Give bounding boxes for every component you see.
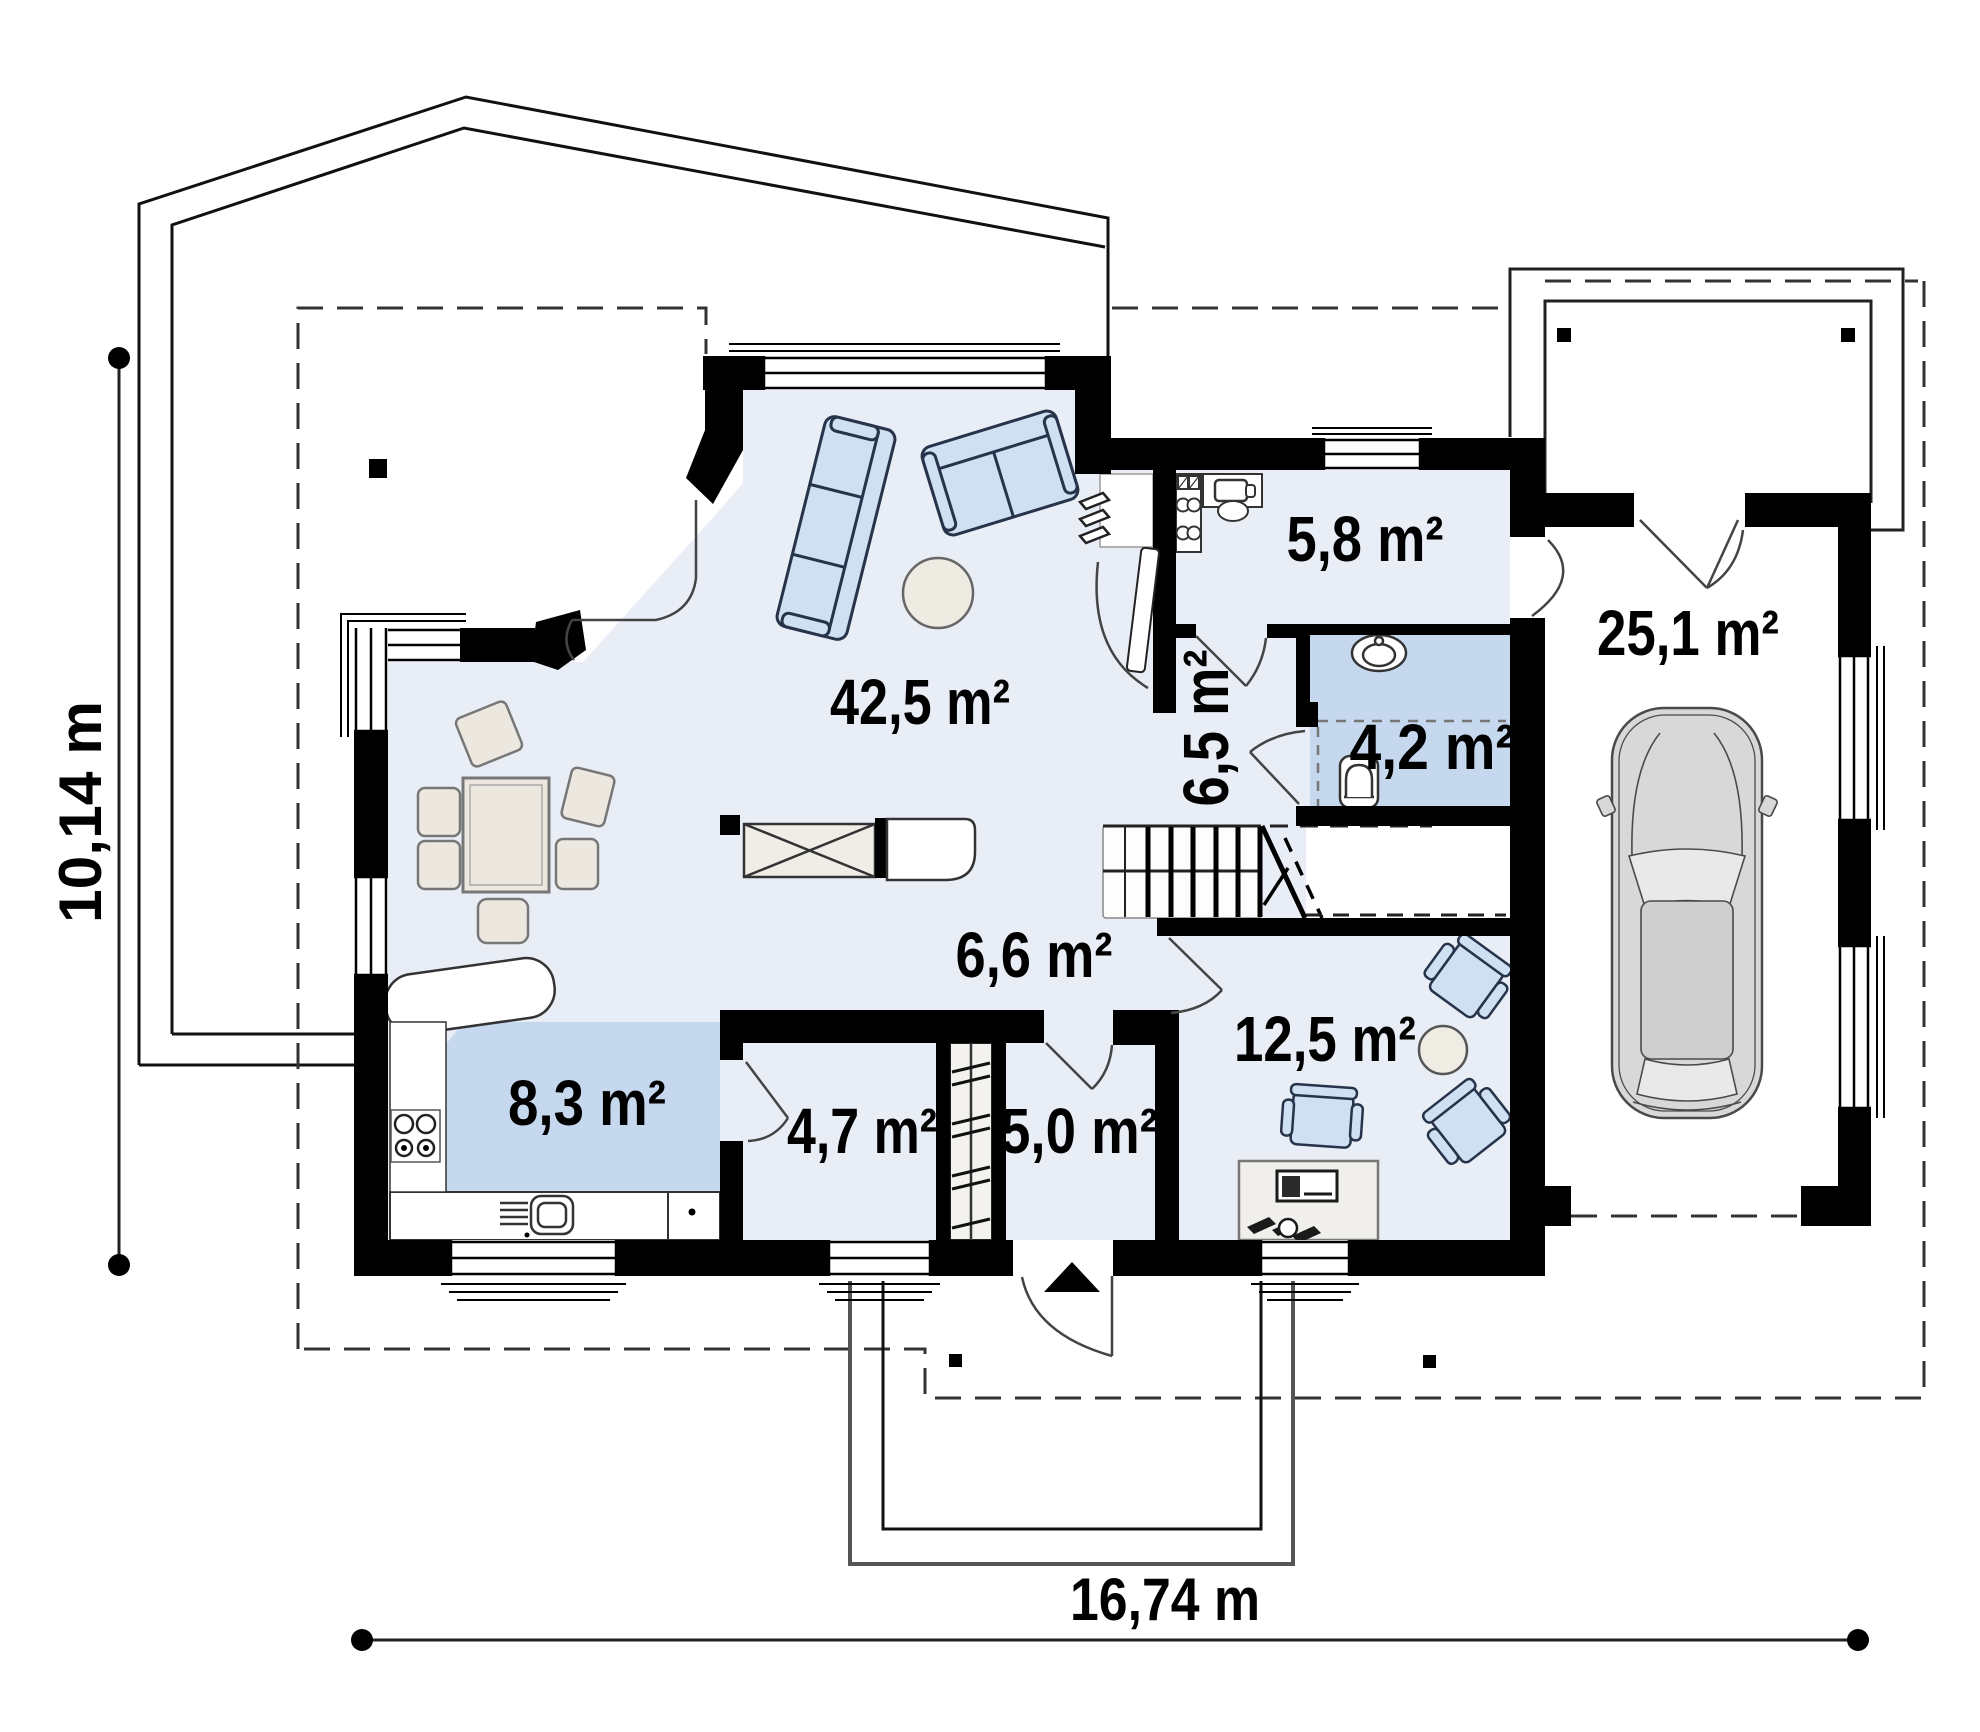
svg-text:12,5 m²: 12,5 m² <box>1234 1003 1416 1075</box>
svg-text:8,3 m²: 8,3 m² <box>508 1067 666 1139</box>
svg-text:4,7 m²: 4,7 m² <box>787 1095 937 1167</box>
svg-text:4,2 m²: 4,2 m² <box>1350 711 1515 783</box>
svg-text:25,1 m²: 25,1 m² <box>1597 597 1779 669</box>
svg-text:42,5 m²: 42,5 m² <box>830 666 1010 738</box>
svg-text:10,14 m: 10,14 m <box>47 701 114 923</box>
svg-text:5,0 m²: 5,0 m² <box>1000 1095 1158 1167</box>
svg-text:6,6 m²: 6,6 m² <box>956 919 1113 991</box>
svg-text:16,74 m: 16,74 m <box>1070 1566 1260 1633</box>
svg-text:5,8 m²: 5,8 m² <box>1287 503 1444 575</box>
svg-text:6,5 m²: 6,5 m² <box>1170 650 1242 807</box>
